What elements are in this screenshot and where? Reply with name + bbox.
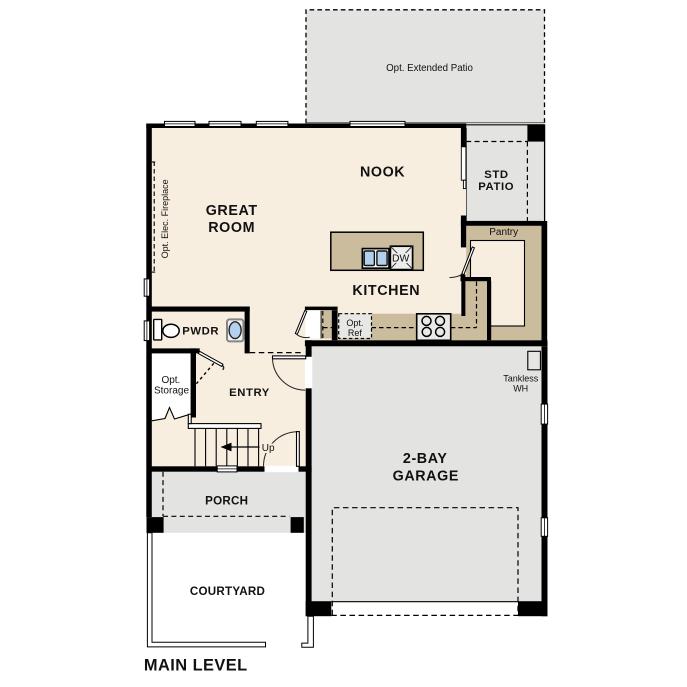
svg-text:STD: STD bbox=[484, 169, 508, 181]
svg-text:Tankless: Tankless bbox=[503, 374, 539, 384]
svg-text:Opt. Extended Patio: Opt. Extended Patio bbox=[386, 63, 473, 74]
svg-text:PATIO: PATIO bbox=[478, 181, 514, 193]
svg-text:2-BAY: 2-BAY bbox=[403, 451, 448, 467]
svg-text:GREAT: GREAT bbox=[206, 203, 258, 219]
svg-text:COURTYARD: COURTYARD bbox=[190, 585, 265, 598]
svg-text:GARAGE: GARAGE bbox=[393, 469, 459, 485]
svg-text:ROOM: ROOM bbox=[208, 220, 255, 236]
svg-text:Opt.: Opt. bbox=[346, 318, 363, 328]
svg-text:Ref: Ref bbox=[348, 328, 363, 338]
svg-text:Pantry: Pantry bbox=[489, 227, 518, 238]
svg-text:WH: WH bbox=[513, 384, 528, 394]
svg-text:Opt.: Opt. bbox=[161, 375, 180, 386]
svg-text:Up: Up bbox=[262, 443, 275, 454]
svg-text:Storage: Storage bbox=[154, 385, 189, 396]
svg-text:MAIN LEVEL: MAIN LEVEL bbox=[144, 657, 248, 675]
svg-text:ENTRY: ENTRY bbox=[229, 387, 270, 399]
svg-text:PWDR: PWDR bbox=[182, 326, 219, 338]
svg-text:PORCH: PORCH bbox=[205, 494, 248, 507]
svg-text:NOOK: NOOK bbox=[360, 164, 405, 180]
svg-text:Opt. Elec. Fireplace: Opt. Elec. Fireplace bbox=[160, 179, 170, 258]
svg-text:KITCHEN: KITCHEN bbox=[352, 283, 420, 299]
svg-text:DW: DW bbox=[392, 254, 410, 265]
